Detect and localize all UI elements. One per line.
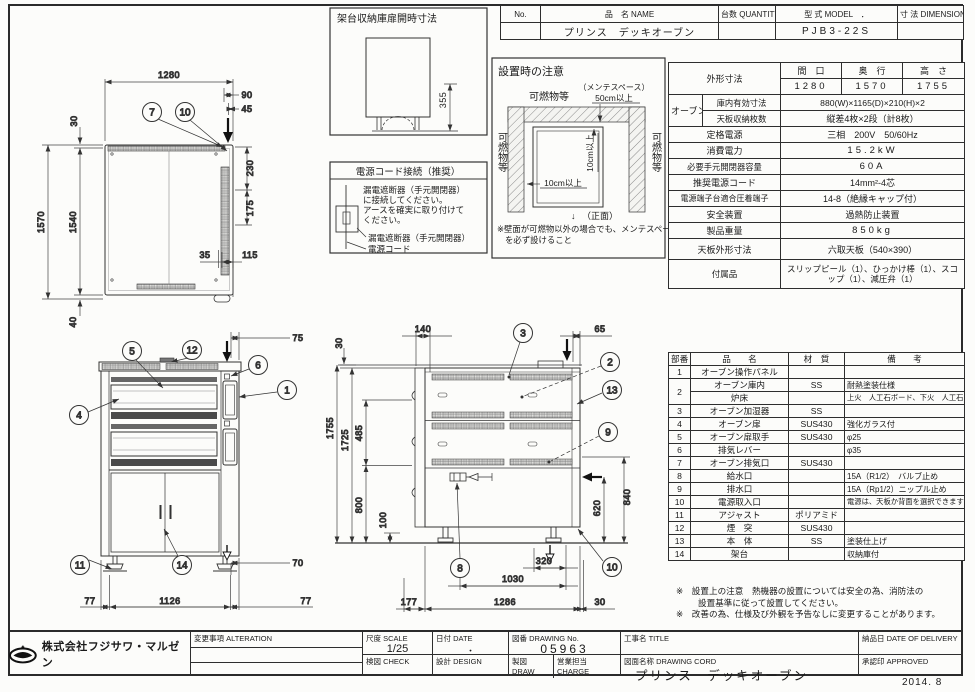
dim-70: 70 [292, 558, 303, 568]
rear-side-arrow-icon [582, 473, 602, 482]
svg-text:11: 11 [75, 561, 86, 572]
callout-10-rear: 10 [578, 529, 622, 577]
dim-77-right: 77 [300, 596, 311, 606]
part-note [845, 522, 965, 535]
spec-row-value: 14-8（絶縁キャップ付） [781, 191, 965, 207]
part-name: 本 体 [691, 535, 789, 548]
spec-oven-label: オーブン [669, 95, 703, 127]
part-name: 排水口 [691, 483, 789, 496]
spec-row-label: 天板外形寸法 [669, 239, 781, 260]
header-dim-label: 寸 法 DIMENSION [898, 6, 964, 23]
stand-door-open-title: 架台収納庫扉開時寸法 [337, 12, 437, 25]
company-name: 株式会社フジサワ・マルゼン [42, 638, 190, 670]
spec-tray-label: 天板収納枚数 [703, 111, 781, 127]
date-block: 日付 DATE ・ 設計 DESIGN [432, 632, 508, 676]
dim-140: 140 [415, 324, 432, 334]
spec-row-value: スリップピール（1）、ひっかけ棒（1）、スコップ（1）、減圧弁（1） [781, 260, 965, 289]
part-no: 3 [669, 405, 691, 418]
svg-text:9: 9 [605, 428, 611, 439]
part-no: 13 [669, 535, 691, 548]
dim-1280: 1280 [158, 70, 180, 80]
part-note [845, 366, 965, 379]
clearance-10cm-vertical-label: 10cm以上 [585, 134, 595, 172]
part-no: 8 [669, 470, 691, 483]
issue-date-stamp: 2014. 8 [902, 677, 942, 688]
part-mat: SS [789, 405, 845, 418]
dim-65: 65 [594, 324, 605, 334]
model-header-table: No. 品 名 NAME 台数 QUANTITY 型 式 MODEL ． 寸 法… [500, 5, 964, 40]
maintenance-space-label: （メンテスペース） [578, 83, 649, 92]
design-label: 設計 DESIGN [433, 655, 508, 668]
drawing-no-block: 図番 DRAWING No. 05963 製図 DRAW 営業担当 CHARGE [508, 632, 620, 676]
part-mat: ポリアミド [789, 509, 845, 522]
front-drain-arrow-icon [223, 545, 231, 560]
svg-text:2: 2 [607, 358, 613, 369]
table-row: 13本 体SS塗装仕上げ [669, 535, 965, 548]
part-no: 5 [669, 431, 691, 444]
svg-text:5: 5 [129, 347, 135, 358]
dim-90: 90 [241, 90, 252, 100]
part-name: オーブン扉 [691, 418, 789, 431]
part-name: 排気レバー [691, 444, 789, 457]
parts-header-mat: 材 質 [789, 353, 845, 366]
part-mat: SS [789, 535, 845, 548]
dim-75: 75 [292, 333, 303, 343]
note-line-3: ※ 改善の為、仕様及び外観を予告なしに変更することがあります。 [676, 609, 968, 621]
dim-1725: 1725 [340, 429, 350, 451]
stand-door-open-box: 架台収納庫扉開時寸法 355 [330, 8, 487, 135]
part-name: 給水口 [691, 470, 789, 483]
callout-8: 8 [451, 483, 470, 578]
dim-230: 230 [245, 160, 255, 177]
table-row: 14架台収納庫付 [669, 548, 965, 561]
part-mat [789, 366, 845, 379]
dim-30: 30 [69, 115, 79, 126]
spec-row-label: 必要手元開閉器容量 [669, 159, 781, 175]
callout-4: 4 [70, 399, 120, 425]
part-no: 1 [669, 366, 691, 379]
dim-177: 177 [401, 597, 418, 607]
callout-1: 1 [239, 381, 297, 400]
table-row: 2オーブン庫内SS耐熱塗装仕様 [669, 379, 965, 392]
delivery-label: 納品日 DATE OF DELIVERY [859, 632, 963, 645]
part-no: 4 [669, 418, 691, 431]
combustible-top-label: 可燃物等 [529, 90, 569, 103]
spec-row-label: 付属品 [669, 260, 781, 289]
part-mat [789, 483, 845, 496]
part-note: 15A（Rp1/2）ニップル止め [845, 483, 965, 496]
part-note [845, 457, 965, 470]
spec-row-value: 15.2kW [781, 143, 965, 159]
svg-text:7: 7 [149, 108, 155, 119]
table-row: 炉床上火 人工石ボード、下火 人工石ボード [669, 392, 965, 405]
spec-tray-value: 縦差4枚×2段（計8枚） [781, 111, 965, 127]
callout-3: 3 [508, 324, 533, 379]
front-supply-arrow-icon [223, 341, 232, 362]
combustible-left-label: 可燃物等 [496, 132, 508, 172]
parts-header-note: 備 考 [845, 353, 965, 366]
part-mat [789, 444, 845, 457]
spec-height-label: 高 さ [903, 63, 965, 79]
installation-caution-box: 設置時の注意 可燃物等 （メンテスペース） 50cm以上 可燃物等 可燃物等 1… [492, 58, 679, 258]
company-logo-icon [8, 644, 38, 664]
dim-840: 840 [622, 489, 632, 506]
table-row: 6排気レバーφ35 [669, 444, 965, 457]
rear-view: 140 65 30 1755 1725 485 800 100 840 620 … [325, 324, 632, 613]
part-name: オーブン排気口 [691, 457, 789, 470]
header-dim-value [898, 23, 964, 40]
callout-13: 13 [577, 381, 622, 405]
part-mat [789, 392, 845, 405]
dim-1570: 1570 [36, 211, 46, 233]
spec-table: 外形寸法 間 口 奥 行 高 さ 1280 1570 1755 オーブン 庫内有… [668, 62, 965, 289]
dim-40: 40 [68, 316, 78, 327]
spec-row-value: 60A [781, 159, 965, 175]
charge-label: 営業担当 CHARGE [554, 655, 621, 677]
svg-text:14: 14 [176, 561, 188, 572]
table-row: 8給水口15A（R1/2） バルブ止め [669, 470, 965, 483]
header-no-label: No. [501, 6, 541, 23]
svg-text:12: 12 [186, 346, 198, 357]
table-row: 7オーブン排気口SUS430 [669, 457, 965, 470]
header-no-value [501, 23, 541, 40]
spec-height-value: 1755 [903, 79, 965, 95]
parts-table: 部番 品 名 材 質 備 考 1オーブン操作パネル 2オーブン庫内SS耐熱塗装仕… [668, 352, 965, 561]
svg-text:3: 3 [520, 329, 526, 340]
table-row: 12煙 突SUS430 [669, 522, 965, 535]
table-row: 4オーブン扉SUS430強化ガラス付 [669, 418, 965, 431]
table-row: 3オーブン加湿器SS [669, 405, 965, 418]
dim-320: 320 [536, 556, 553, 566]
callout-10: 10 [176, 103, 228, 152]
part-mat [789, 496, 845, 509]
part-no: 9 [669, 483, 691, 496]
spec-row-value: 三相 200V 50/60Hz [781, 127, 965, 143]
part-mat: SUS430 [789, 431, 845, 444]
power-cord-box: 電源コード接続（推奨） 漏電遮断器（手元開閉器） に接続してください。 アースを… [330, 162, 487, 254]
part-note: 15A（R1/2） バルブ止め [845, 470, 965, 483]
part-name: オーブン扉取手 [691, 431, 789, 444]
table-row: 10電源取入口電源は、天板か背面を選択できます [669, 496, 965, 509]
part-name: アジャスト [691, 509, 789, 522]
table-row: 1オーブン操作パネル [669, 366, 965, 379]
part-name: オーブン加湿器 [691, 405, 789, 418]
alteration-row [191, 662, 362, 663]
draw-label: 製図 DRAW [509, 655, 553, 677]
clearance-50cm-label: 50cm以上 [595, 93, 633, 103]
part-note: φ25 [845, 431, 965, 444]
dim-175: 175 [245, 200, 255, 217]
title-block: 株式会社フジサワ・マルゼン 変更事項 ALTERATION 尺度 SCALE 1… [8, 630, 963, 676]
alteration-row [191, 647, 362, 648]
svg-text:6: 6 [255, 361, 261, 372]
front-direction-arrow: ↓ [571, 211, 576, 221]
dim-1126: 1126 [159, 596, 180, 606]
svg-text:1: 1 [284, 386, 290, 397]
part-no: 2 [669, 379, 691, 405]
scale-value: 1/25 [363, 643, 432, 655]
plan-view: 1280 90 45 30 1570 1540 40 230 175 35 11… [36, 70, 258, 328]
header-name-label: 品 名 NAME [541, 6, 719, 23]
spec-depth-value: 1570 [842, 79, 903, 95]
spec-row-value: 14mm²-4芯 [781, 175, 965, 191]
installation-caution-title: 設置時の注意 [498, 64, 564, 78]
combustible-right-label: 可燃物等 [650, 132, 662, 172]
part-note: 上火 人工石ボード、下火 人工石ボード [845, 392, 965, 405]
caution-note-line2: を必ず設けること [505, 235, 572, 245]
product-name: プリンス デッキオーブン [541, 23, 719, 40]
dim-77-left: 77 [84, 596, 95, 606]
dim-1755: 1755 [325, 417, 335, 439]
dim-485: 485 [354, 425, 364, 442]
dim-100: 100 [378, 512, 388, 529]
spec-row-value: 六取天板（540×390） [781, 239, 965, 260]
spec-depth-label: 奥 行 [842, 63, 903, 79]
part-no: 11 [669, 509, 691, 522]
part-mat: SUS430 [789, 457, 845, 470]
part-no: 6 [669, 444, 691, 457]
part-no: 14 [669, 548, 691, 561]
part-note: φ35 [845, 444, 965, 457]
spec-inner-dim-value: 880(W)×1165(D)×210(H)×2 [781, 95, 965, 111]
clearance-10cm-horizontal-label: 10cm以上 [544, 178, 582, 188]
drawing-sheet: 1280 90 45 30 1570 1540 40 230 175 35 11… [0, 0, 975, 692]
power-cord-note-line4: ください。 [363, 215, 406, 225]
part-note: 強化ガラス付 [845, 418, 965, 431]
power-cord-note-line3: アースを確実に取り付けて [363, 205, 464, 215]
spec-row-label: 推奨電源コード [669, 175, 781, 191]
company-logo: 株式会社フジサワ・マルゼン [8, 632, 190, 676]
dim-620: 620 [592, 500, 602, 517]
svg-text:10: 10 [179, 108, 191, 119]
part-name: 炉床 [691, 392, 789, 405]
part-no: 12 [669, 522, 691, 535]
model-number: PJB3-22S [776, 23, 898, 40]
spec-row-label: 安全装置 [669, 207, 781, 223]
spec-outer-dim-label: 外形寸法 [669, 63, 781, 95]
delivery-block: 納品日 DATE OF DELIVERY 承認印 APPROVED [858, 632, 963, 676]
svg-text:4: 4 [76, 411, 82, 422]
dim-35: 35 [199, 250, 210, 260]
header-model-label: 型 式 MODEL ． [776, 6, 898, 23]
svg-text:8: 8 [457, 564, 463, 575]
title-name-block: 工事名 TITLE 図面名称 DRAWING CORD プリンス デッキオーブン [620, 632, 858, 676]
parts-header-name: 品 名 [691, 353, 789, 366]
spec-row-value: 過熱防止装置 [781, 207, 965, 223]
dim-45: 45 [241, 104, 252, 114]
dim-115: 115 [242, 250, 258, 260]
spec-row-label: 定格電源 [669, 127, 781, 143]
header-qty-value [719, 23, 776, 40]
spec-width-value: 1280 [781, 79, 842, 95]
spec-row-value: 850kg [781, 223, 965, 239]
parts-header-no: 部番 [669, 353, 691, 366]
part-no: 10 [669, 496, 691, 509]
breaker-label: 漏電遮断器（手元開閉器） [368, 233, 470, 243]
dim-800: 800 [354, 497, 364, 514]
part-name: オーブン操作パネル [691, 366, 789, 379]
svg-text:13: 13 [606, 386, 618, 397]
part-mat: SUS430 [789, 418, 845, 431]
power-cord-label: 電源コード [368, 244, 411, 254]
callout-12: 12 [171, 341, 202, 363]
part-name: 架台 [691, 548, 789, 561]
part-note [845, 509, 965, 522]
approved-label: 承認印 APPROVED [859, 655, 963, 668]
part-note: 耐熱塗装仕様 [845, 379, 965, 392]
part-note: 収納庫付 [845, 548, 965, 561]
table-row: 9排水口15A（Rp1/2）ニップル止め [669, 483, 965, 496]
part-note [845, 405, 965, 418]
spec-row-label: 製品重量 [669, 223, 781, 239]
dim-1540: 1540 [68, 211, 78, 233]
dim-1030: 1030 [502, 574, 524, 584]
footer-notes: ※ 設置上の注意 熱機器の設置については安全の為、消防法の 設置基準に従って設置… [676, 586, 968, 621]
dim-30-top: 30 [334, 337, 344, 348]
spec-row-label: 電源端子台適合圧着端子 [669, 191, 781, 207]
dim-1286: 1286 [494, 597, 516, 607]
spec-inner-dim-label: 庫内有効寸法 [703, 95, 781, 111]
part-note: 電源は、天板か背面を選択できます [845, 496, 965, 509]
check-label: 検図 CHECK [363, 655, 432, 668]
header-qty-label: 台数 QUANTITY [719, 6, 776, 23]
callout-11: 11 [71, 556, 113, 575]
part-note: 塗装仕上げ [845, 535, 965, 548]
note-line-2: 設置基準に従って設置してください。 [676, 598, 968, 610]
caution-note-line1: ※壁面が可燃物以外の場合でも、メンテスペース [497, 224, 679, 234]
note-line-1: ※ 設置上の注意 熱機器の設置については安全の為、消防法の [676, 586, 968, 598]
part-name: オーブン庫内 [691, 379, 789, 392]
part-mat: SS [789, 379, 845, 392]
water-inlet-fitting [450, 473, 492, 481]
svg-text:10: 10 [606, 563, 618, 574]
rear-supply-arrow-icon [563, 339, 572, 361]
drawing-no-value: 05963 [509, 642, 620, 656]
table-row: 5オーブン扉取手SUS430φ25 [669, 431, 965, 444]
dim-30-bottom: 30 [594, 597, 605, 607]
scale-block: 尺度 SCALE 1/25 検図 CHECK [362, 632, 432, 676]
part-mat [789, 548, 845, 561]
plan-supply-arrow-icon [223, 118, 233, 143]
part-mat [789, 470, 845, 483]
dim-355: 355 [438, 92, 448, 109]
callout-6: 6 [231, 356, 268, 377]
front-direction-label: （正面） [582, 211, 618, 221]
front-view: 75 70 77 1126 77 5 12 6 1 [70, 332, 314, 610]
construction-title-label: 工事名 TITLE [621, 632, 858, 645]
part-mat: SUS430 [789, 522, 845, 535]
alteration-block: 変更事項 ALTERATION [190, 632, 362, 676]
power-cord-note-line2: に接続してください。 [363, 195, 448, 205]
power-cord-title: 電源コード接続（推奨） [356, 166, 461, 178]
drawing-name-value: プリンス デッキオーブン [621, 665, 858, 684]
alteration-label: 変更事項 ALTERATION [191, 632, 362, 645]
part-no: 7 [669, 457, 691, 470]
spec-row-label: 消費電力 [669, 143, 781, 159]
part-name: 煙 突 [691, 522, 789, 535]
table-row: 11アジャストポリアミド [669, 509, 965, 522]
spec-width-label: 間 口 [781, 63, 842, 79]
power-cord-note-line1: 漏電遮断器（手元開閉器） [363, 185, 465, 195]
part-name: 電源取入口 [691, 496, 789, 509]
